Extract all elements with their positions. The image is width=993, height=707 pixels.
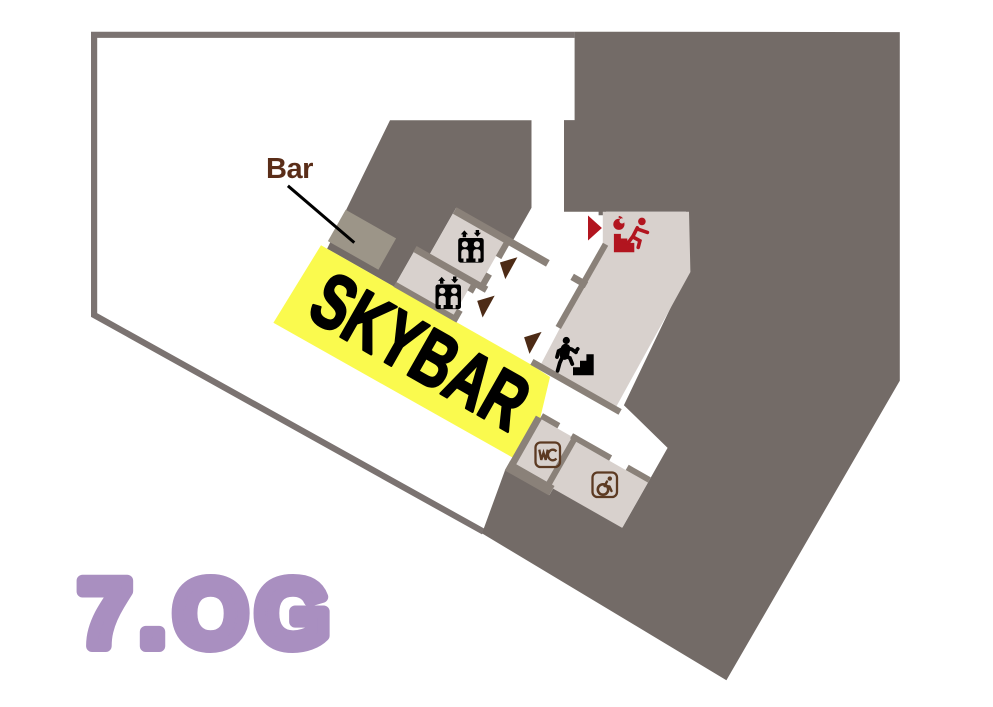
svg-text:Bar: Bar [266, 153, 313, 185]
svg-text:7.OG: 7.OG [79, 561, 338, 667]
